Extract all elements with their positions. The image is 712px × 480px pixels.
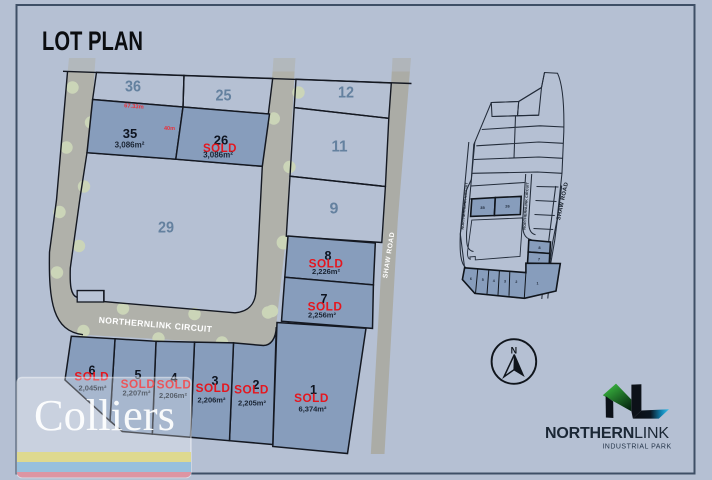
svg-text:LOT PLAN: LOT PLAN bbox=[42, 26, 143, 56]
svg-text:2,205m²: 2,205m² bbox=[238, 399, 266, 408]
svg-text:SOLD: SOLD bbox=[294, 391, 329, 405]
svg-text:INDUSTRIAL PARK: INDUSTRIAL PARK bbox=[602, 444, 671, 451]
svg-text:35: 35 bbox=[123, 126, 137, 141]
svg-text:2: 2 bbox=[515, 280, 517, 284]
svg-text:36: 36 bbox=[125, 79, 141, 96]
svg-text:9: 9 bbox=[330, 201, 339, 218]
svg-text:6,374m²: 6,374m² bbox=[299, 405, 327, 414]
svg-text:Colliers: Colliers bbox=[34, 390, 175, 440]
svg-text:2,256m²: 2,256m² bbox=[308, 311, 336, 320]
svg-text:1: 1 bbox=[537, 282, 539, 286]
svg-text:6: 6 bbox=[470, 277, 472, 281]
svg-text:2,226m²: 2,226m² bbox=[312, 267, 340, 276]
svg-text:2,206m²: 2,206m² bbox=[198, 396, 226, 405]
svg-text:5: 5 bbox=[482, 278, 484, 282]
svg-text:25: 25 bbox=[216, 88, 232, 105]
svg-text:NORTHERNLINK: NORTHERNLINK bbox=[545, 425, 669, 442]
svg-text:26: 26 bbox=[505, 204, 510, 209]
svg-text:N: N bbox=[511, 346, 518, 356]
svg-text:3: 3 bbox=[504, 280, 506, 284]
svg-text:4: 4 bbox=[493, 279, 495, 283]
svg-text:35: 35 bbox=[480, 205, 485, 210]
svg-text:3,086m²: 3,086m² bbox=[115, 141, 145, 150]
svg-text:11: 11 bbox=[332, 139, 348, 156]
svg-text:12: 12 bbox=[338, 85, 354, 102]
svg-text:SOLD: SOLD bbox=[196, 381, 231, 395]
svg-text:3,086m²: 3,086m² bbox=[203, 151, 233, 160]
svg-text:SOLD: SOLD bbox=[234, 383, 269, 397]
svg-text:29: 29 bbox=[158, 220, 174, 237]
svg-text:40m: 40m bbox=[164, 126, 175, 132]
